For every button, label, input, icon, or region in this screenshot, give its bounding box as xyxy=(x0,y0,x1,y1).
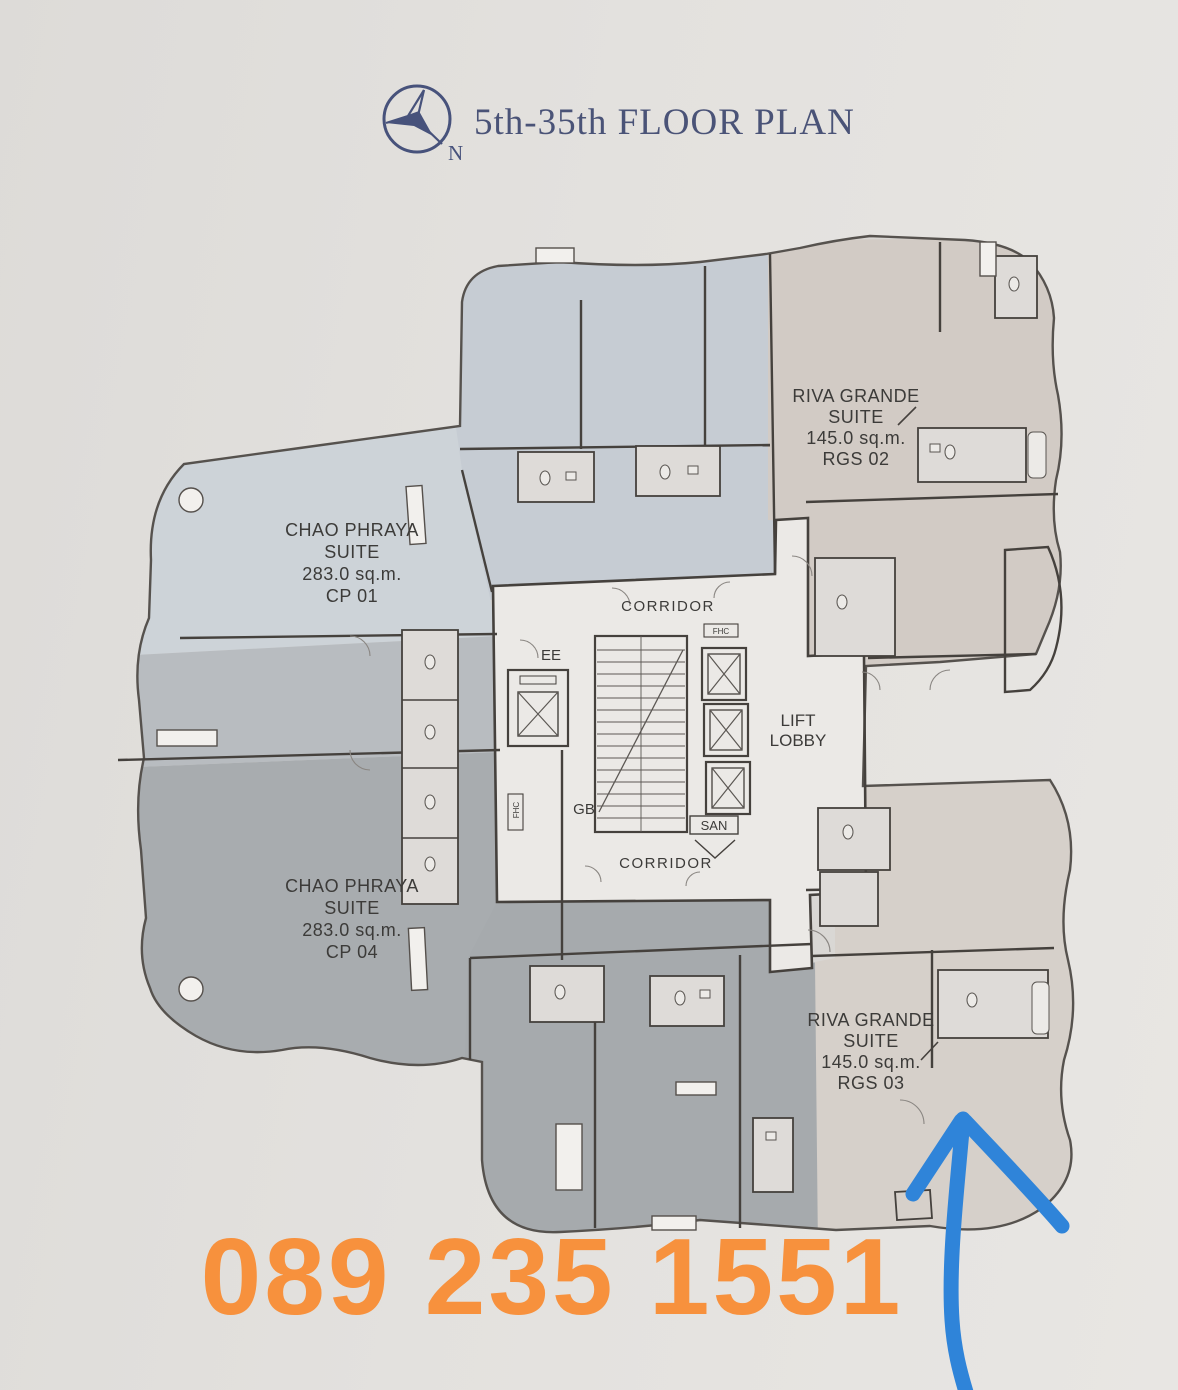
compass-icon: N xyxy=(384,86,463,165)
phone-number-annotation: 089 235 1551 xyxy=(201,1216,904,1338)
compass-north-label: N xyxy=(448,141,463,165)
corridor-top-label: CORRIDOR xyxy=(621,598,715,615)
rgs02-name: RIVA GRANDE xyxy=(792,386,919,406)
gb-label: GB xyxy=(573,801,595,818)
rgs03-area: 145.0 sq.m. xyxy=(821,1052,921,1072)
cp04-suite: SUITE xyxy=(324,898,380,918)
fhc-side-label: FHC xyxy=(512,802,521,819)
cp04-name: CHAO PHRAYA xyxy=(285,876,419,896)
cp04-area: 283.0 sq.m. xyxy=(302,920,402,940)
rgs02-code: RGS 02 xyxy=(822,449,889,469)
rgs03-suite: SUITE xyxy=(843,1031,899,1051)
lift-lobby-label-1: LIFT xyxy=(781,711,816,730)
lift-lobby-label-2: LOBBY xyxy=(770,731,827,750)
rgs02-suite: SUITE xyxy=(828,407,884,427)
san-label: SAN xyxy=(701,818,728,833)
rgs03-name: RIVA GRANDE xyxy=(807,1010,934,1030)
floor-plan-drawing: CHAO PHRAYA SUITE 283.0 sq.m. CP 01 CHAO… xyxy=(0,0,1178,1390)
corridor-bottom-label: CORRIDOR xyxy=(619,855,713,872)
cp01-name: CHAO PHRAYA xyxy=(285,520,419,540)
rgs02-area: 145.0 sq.m. xyxy=(806,428,906,448)
cp01-suite: SUITE xyxy=(324,542,380,562)
floor-plan-photo: CHAO PHRAYA SUITE 283.0 sq.m. CP 01 CHAO… xyxy=(0,0,1178,1390)
cp04-code: CP 04 xyxy=(326,942,378,962)
fhc-top-label: FHC xyxy=(713,627,730,636)
cp01-code: CP 01 xyxy=(326,586,378,606)
cp01-area: 283.0 sq.m. xyxy=(302,564,402,584)
ee-label: EE xyxy=(541,647,561,664)
plan-title: 5th-35th FLOOR PLAN xyxy=(474,102,855,143)
rgs03-code: RGS 03 xyxy=(837,1073,904,1093)
